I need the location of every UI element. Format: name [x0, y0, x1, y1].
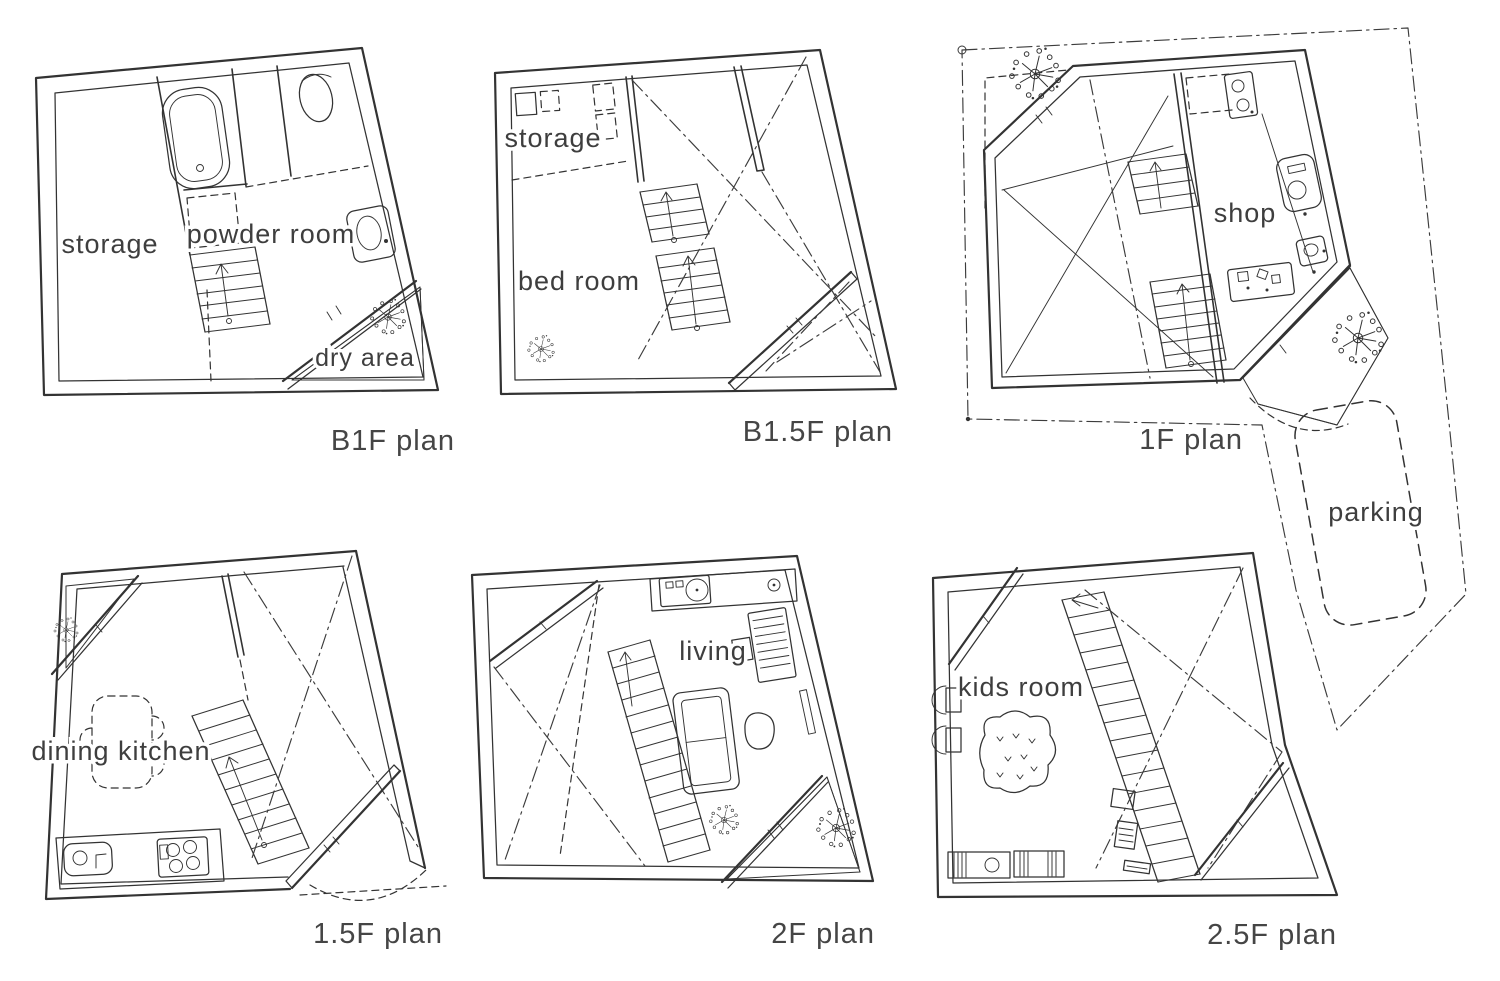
room-label-living: living: [679, 636, 747, 666]
stairs-upper: [1128, 154, 1198, 214]
void-dashed-line: [560, 585, 599, 856]
floorplan-2-5f: kids room 2.5F plan: [932, 553, 1337, 951]
top-counter: [650, 569, 797, 611]
floor-plan-sheet: storage powder room dry area B1F plan st…: [0, 0, 1500, 981]
stairs: [192, 700, 309, 864]
floorplan-b1f: storage powder room dry area B1F plan: [36, 48, 455, 457]
stove: [157, 837, 209, 878]
center-dashed: [240, 660, 248, 700]
stairs: [608, 640, 710, 862]
inner-wall-line: [61, 566, 344, 884]
door-tick: [327, 306, 341, 320]
toilet: [295, 71, 338, 125]
outer-wall: [46, 551, 356, 899]
door-tick: [1280, 345, 1286, 353]
nw-diagonal-wall: [949, 568, 1023, 670]
door-swing: [300, 870, 446, 900]
tree-icon: [1010, 48, 1061, 100]
interior-wall-top: [734, 66, 764, 171]
up-arrow: [1177, 284, 1190, 360]
floorplan-1-5f: dining kitchen 1.5F plan: [31, 551, 446, 950]
room-label-powder-room: powder room: [187, 219, 356, 249]
room-label-parking: parking: [1328, 497, 1424, 527]
balcony-terrace: [722, 776, 860, 888]
up-arrow: [226, 757, 262, 840]
storage-dashed-boundary: [512, 161, 628, 180]
diagonal-wall: [286, 765, 400, 888]
shop-table: [1227, 262, 1294, 302]
stove: [1224, 71, 1258, 118]
void-crossing-lines: [494, 585, 645, 866]
outer-wall: [984, 50, 1350, 388]
void-crossing-lines: [1085, 568, 1282, 868]
diagonal-wall: [729, 272, 871, 390]
central-wall: [1174, 73, 1224, 383]
inner-wall-line-right: [343, 567, 425, 868]
plan-title-2-5f: 2.5F plan: [1207, 919, 1337, 951]
play-rug: [980, 711, 1056, 793]
plan-title-b1f: B1F plan: [331, 425, 455, 457]
floorplan-2f: living 2F plan: [472, 556, 875, 950]
plant-icon: [709, 805, 738, 835]
dry-area-terrace: [283, 281, 424, 389]
interior-wall: [626, 76, 644, 182]
plan-title-2f: 2F plan: [771, 918, 875, 950]
plan-title-1f: 1F plan: [1139, 424, 1243, 456]
plant-icon: [528, 335, 555, 362]
sofa: [672, 687, 740, 795]
void-crossing-line: [1090, 80, 1150, 378]
outer-wall: [495, 50, 896, 394]
void-crossing-lines: [244, 556, 420, 858]
setback-line: [985, 70, 1068, 208]
floorplan-1f: parking: [958, 28, 1466, 730]
plan-title-b1-5f: B1.5F plan: [743, 416, 893, 448]
window-slit: [799, 690, 815, 734]
book-shelves: [948, 851, 1064, 878]
floorplan-b1-5f: storage bed room B1.5F plan: [495, 50, 896, 448]
bathtub: [159, 84, 232, 191]
stairs: [190, 247, 270, 332]
room-label-dining-kitchen: dining kitchen: [31, 736, 210, 766]
outer-wall-right: [356, 551, 425, 868]
boundary-marker: [966, 417, 970, 421]
entrance-terrace: [1240, 266, 1388, 430]
room-label-dry-area: dry area: [315, 344, 415, 372]
floor-plans-drawing: storage powder room dry area B1F plan st…: [0, 0, 1500, 981]
room-label-storage: storage: [504, 123, 601, 153]
room-label-kids-room: kids room: [958, 672, 1084, 702]
inner-wall-line: [511, 65, 881, 380]
center-wall: [222, 574, 244, 657]
door-tick: [540, 622, 546, 629]
room-label-bed-room: bed room: [518, 266, 640, 296]
void-room-lines: [1002, 96, 1213, 377]
stairs: [1062, 592, 1200, 882]
door-tick: [1237, 820, 1243, 827]
site-boundary: [962, 28, 1466, 730]
garage-door-ticks: [1036, 107, 1052, 123]
tree-icon: [1333, 312, 1384, 364]
washing-machine: [659, 575, 711, 606]
plan-title-1-5f: 1.5F plan: [313, 918, 443, 950]
stairs-lower: [1150, 274, 1226, 368]
room-label-storage: storage: [61, 229, 158, 259]
stairs-upper: [640, 184, 709, 243]
coffee-table: [745, 713, 774, 749]
se-diagonal-wall: [1195, 763, 1289, 880]
door-tick: [96, 625, 102, 632]
kitchen-sink: [63, 842, 113, 876]
door-tick: [983, 616, 989, 623]
room-label-shop: shop: [1214, 198, 1277, 228]
